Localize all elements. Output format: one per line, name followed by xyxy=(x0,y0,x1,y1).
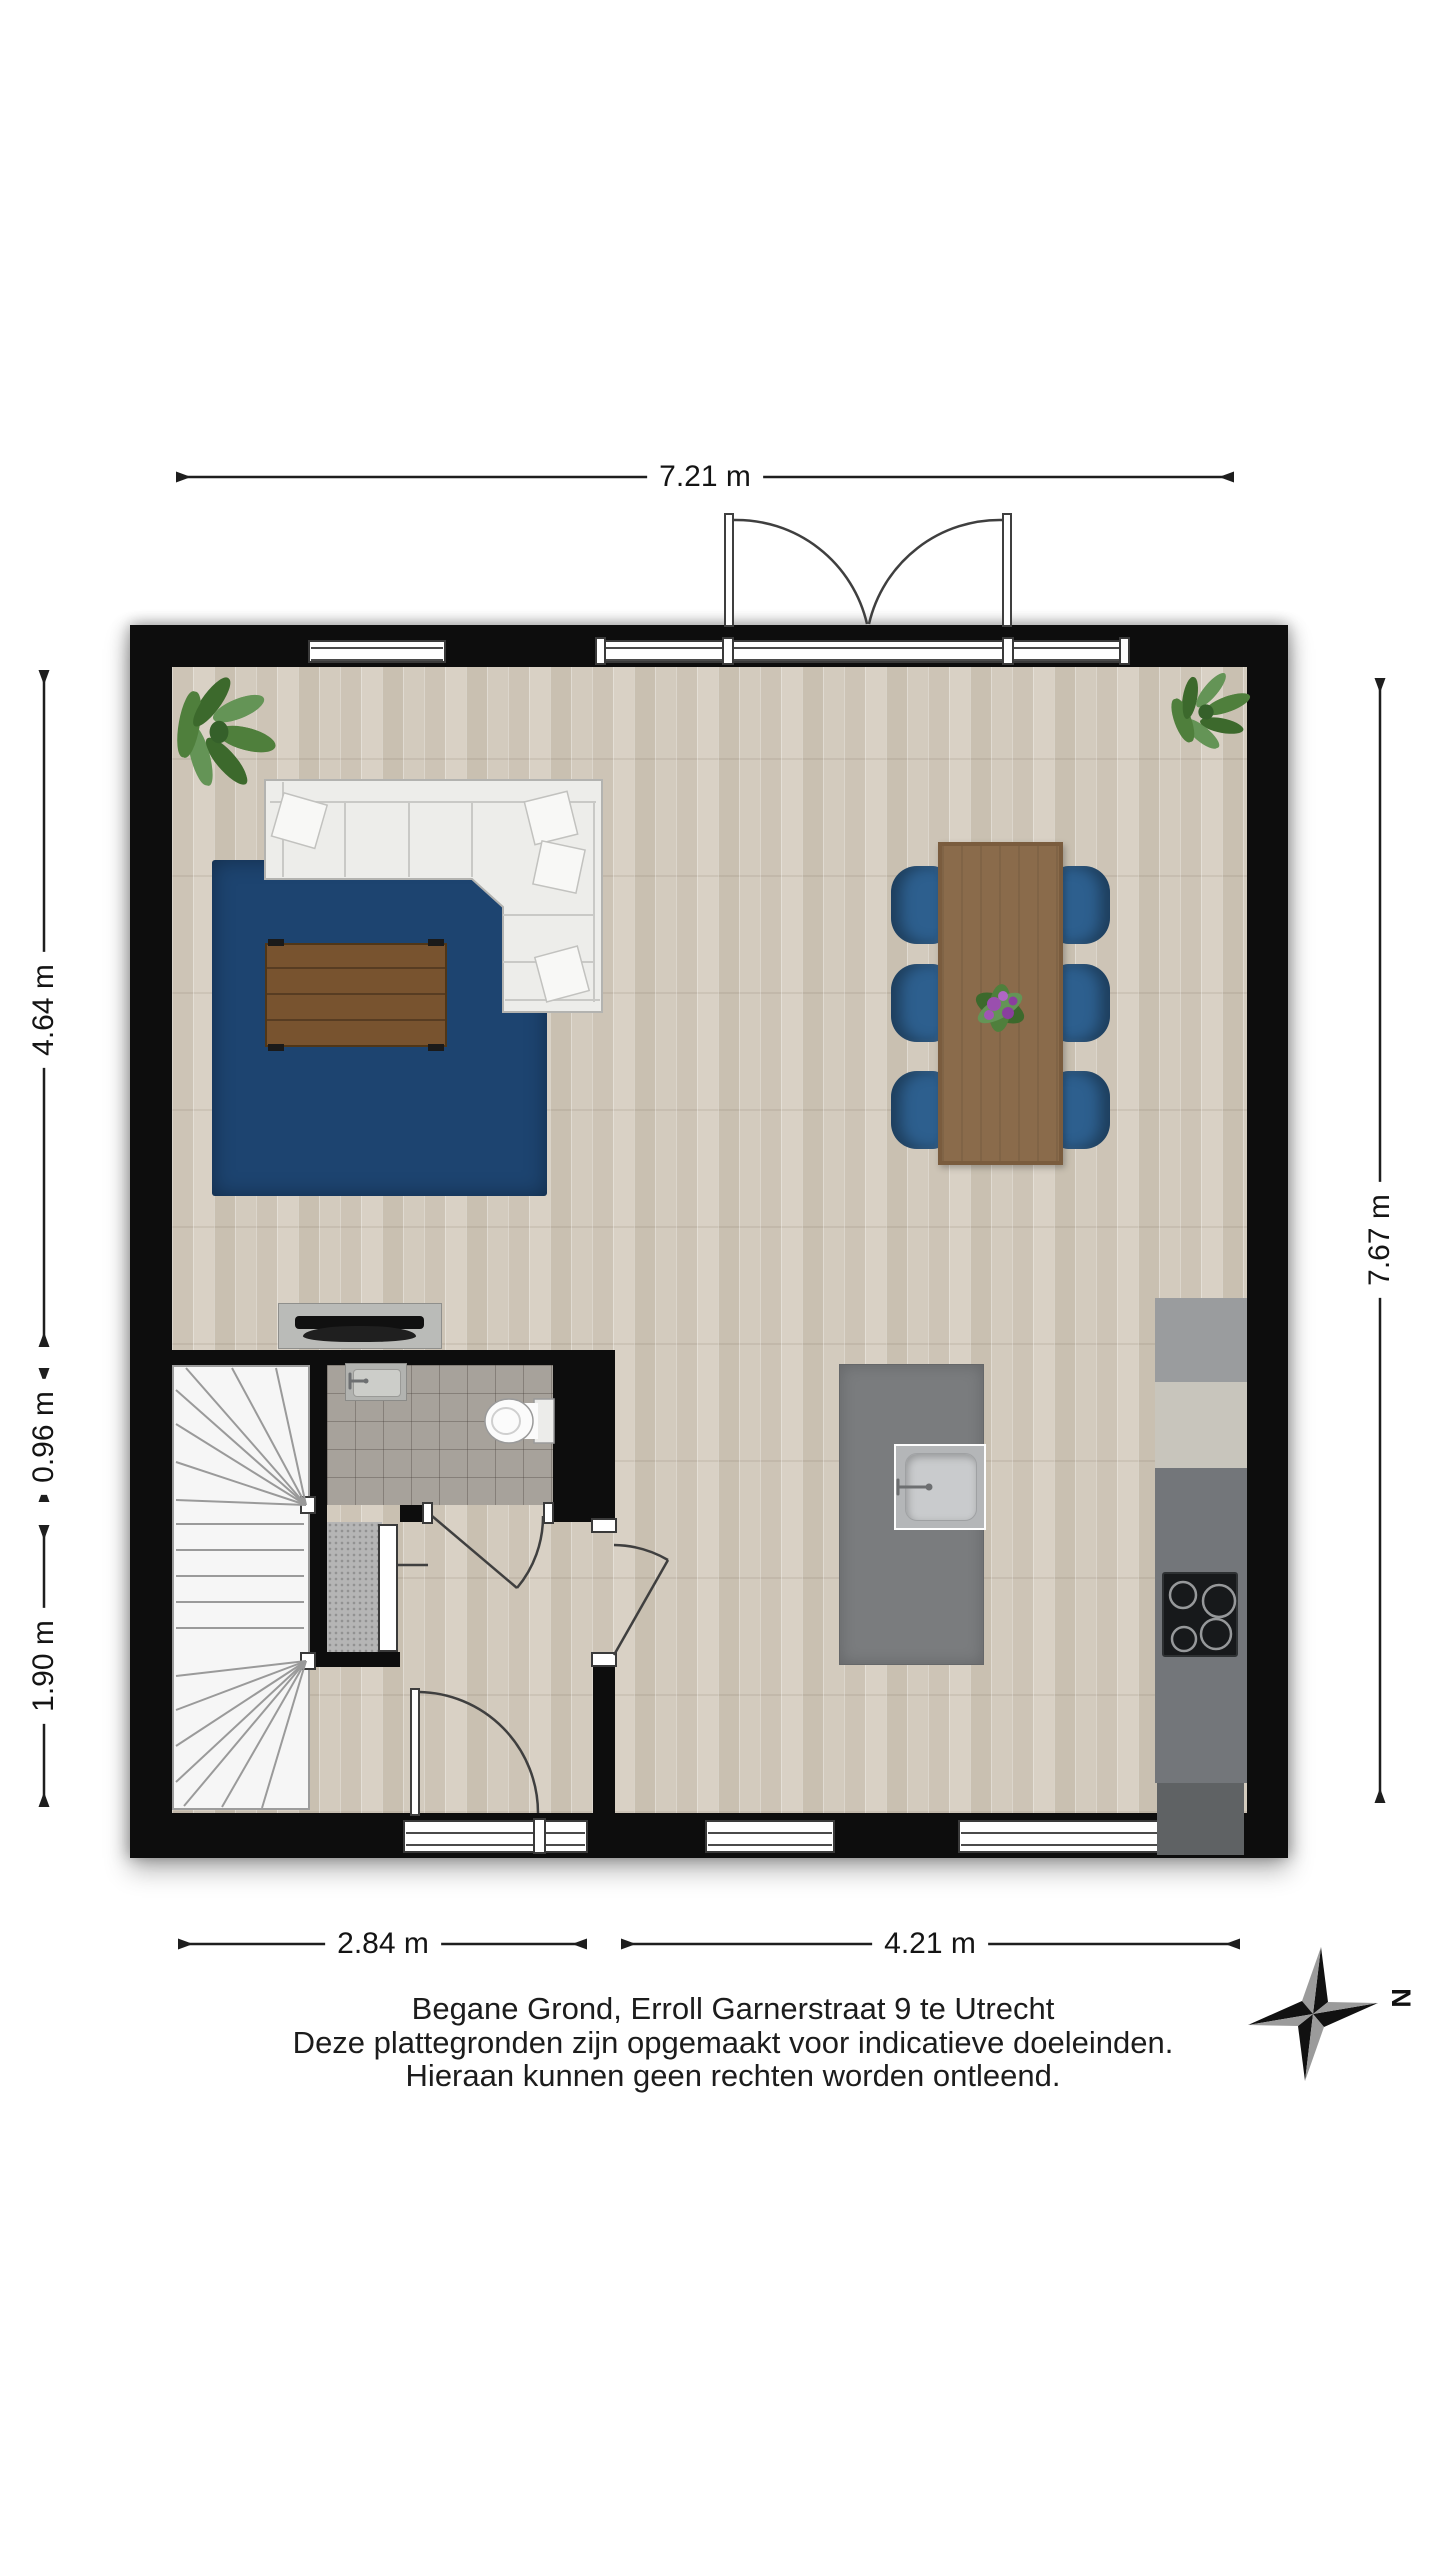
dimension-label-top: 7.21 m xyxy=(647,460,763,494)
cooktop xyxy=(1162,1572,1238,1657)
dining-chair xyxy=(891,866,945,944)
kitchen-counter xyxy=(1155,1298,1247,1382)
door-post xyxy=(1119,637,1130,665)
dining-chair xyxy=(1056,1071,1110,1149)
stair-newel xyxy=(300,1496,316,1514)
dimension-label-left-toilet: 0.96 m xyxy=(27,1379,61,1495)
island-sink xyxy=(894,1444,986,1530)
disclaimer-line: Hieraan kunnen geen rechten worden ontle… xyxy=(406,2059,1061,2092)
toilet-duct xyxy=(553,1365,593,1505)
compass-north-label: N xyxy=(1386,1988,1416,2008)
front-door-frame xyxy=(403,1820,588,1853)
kitchen-counter-end xyxy=(1157,1783,1244,1855)
door-post xyxy=(1002,637,1014,665)
staircase xyxy=(172,1365,310,1810)
window xyxy=(599,640,1130,663)
coffee-table xyxy=(265,943,447,1047)
wall-segment xyxy=(553,1505,593,1522)
door-post xyxy=(722,637,734,665)
french-doors xyxy=(725,514,1011,626)
wall-segment xyxy=(310,1365,327,1667)
door-post xyxy=(591,1518,617,1533)
tv-screen xyxy=(303,1326,416,1342)
wall-segment xyxy=(593,1667,615,1813)
compass-rose: N xyxy=(1248,1947,1416,2081)
kitchen-counter xyxy=(1155,1382,1247,1468)
dining-table xyxy=(938,842,1063,1165)
dimension-label-right: 7.67 m xyxy=(1363,1182,1397,1298)
plan-title: Begane Grond, Erroll Garnerstraat 9 te U… xyxy=(412,1992,1055,2025)
stair-newel xyxy=(300,1652,316,1670)
dimension-label-bottom-right: 4.21 m xyxy=(872,1927,988,1961)
door-post xyxy=(543,1502,554,1524)
window xyxy=(705,1820,835,1853)
window xyxy=(308,640,446,663)
wall-segment xyxy=(400,1505,422,1522)
closet-door-frame xyxy=(378,1524,398,1652)
disclaimer-line: Deze plattegronden zijn opgemaakt voor i… xyxy=(293,2026,1174,2059)
door-post xyxy=(591,1652,617,1667)
dining-chair xyxy=(891,964,945,1042)
wall-segment xyxy=(310,1652,400,1667)
dimension-label-left-hall: 1.90 m xyxy=(27,1608,61,1724)
floorplan-page: 7.21 m 4.64 m 0.96 m 1.90 m 7.67 m 2.84 … xyxy=(0,0,1440,2560)
wall-segment xyxy=(593,1350,615,1518)
dining-chair xyxy=(1056,964,1110,1042)
toilet-washbasin xyxy=(345,1363,407,1401)
dimension-label-bottom-left: 2.84 m xyxy=(325,1927,441,1961)
dimension-label-left-living: 4.64 m xyxy=(27,952,61,1068)
door-post xyxy=(533,1818,546,1854)
door-post xyxy=(422,1502,433,1524)
utility-closet-floor xyxy=(327,1522,382,1652)
dining-chair xyxy=(891,1071,945,1149)
door-post xyxy=(595,637,606,665)
dining-chair xyxy=(1056,866,1110,944)
